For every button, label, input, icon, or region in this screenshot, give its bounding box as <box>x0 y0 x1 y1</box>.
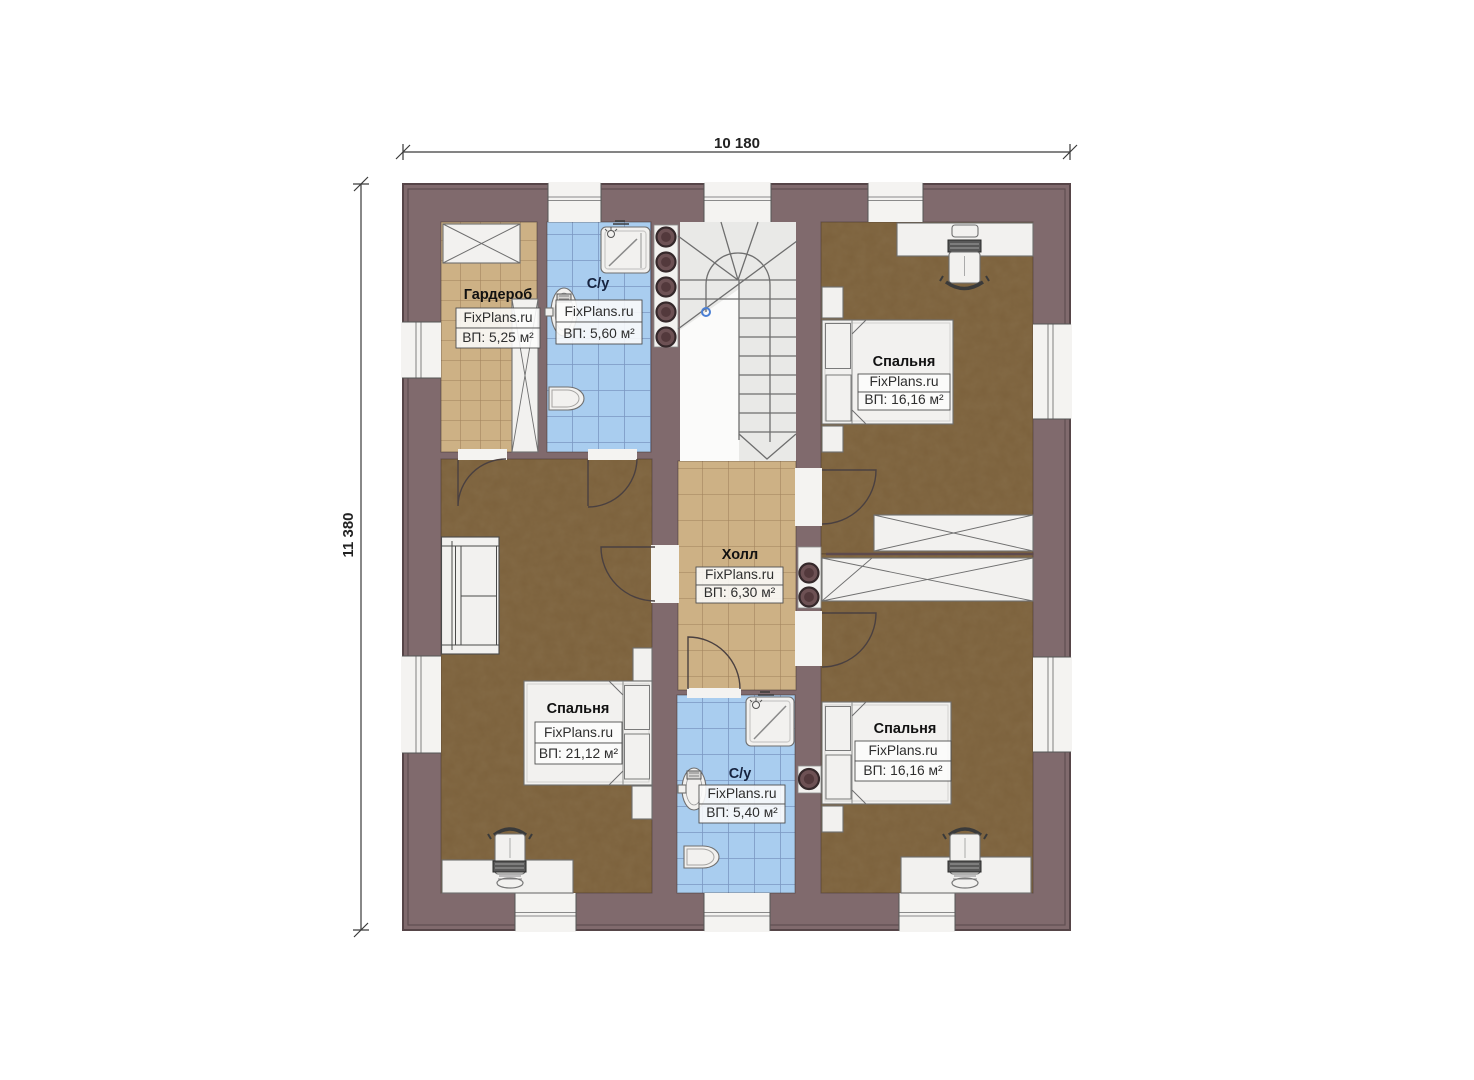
svg-text:FixPlans.ru: FixPlans.ru <box>869 374 938 389</box>
svg-text:FixPlans.ru: FixPlans.ru <box>544 725 613 740</box>
svg-text:FixPlans.ru: FixPlans.ru <box>705 567 774 582</box>
svg-text:FixPlans.ru: FixPlans.ru <box>463 310 532 325</box>
svg-text:ВП: 5,60 м²: ВП: 5,60 м² <box>563 326 635 341</box>
svg-text:С/у: С/у <box>587 276 610 292</box>
svg-text:С/у: С/у <box>729 766 752 782</box>
svg-text:FixPlans.ru: FixPlans.ru <box>707 786 776 801</box>
svg-text:ВП: 5,25 м²: ВП: 5,25 м² <box>462 330 534 345</box>
svg-text:Спальня: Спальня <box>874 721 937 737</box>
svg-text:ВП: 16,16 м²: ВП: 16,16 м² <box>863 763 943 778</box>
svg-text:Гардероб: Гардероб <box>464 287 533 303</box>
svg-text:FixPlans.ru: FixPlans.ru <box>564 304 633 319</box>
svg-text:Спальня: Спальня <box>873 354 936 370</box>
svg-text:ВП: 21,12 м²: ВП: 21,12 м² <box>539 746 619 761</box>
svg-text:ВП: 5,40 м²: ВП: 5,40 м² <box>706 805 778 820</box>
svg-text:ВП: 16,16 м²: ВП: 16,16 м² <box>864 392 944 407</box>
svg-text:10 180: 10 180 <box>714 135 760 152</box>
svg-text:11 380: 11 380 <box>340 512 357 557</box>
svg-text:Холл: Холл <box>722 547 758 563</box>
svg-text:FixPlans.ru: FixPlans.ru <box>868 743 937 758</box>
svg-text:Спальня: Спальня <box>547 701 610 717</box>
svg-text:ВП: 6,30 м²: ВП: 6,30 м² <box>704 585 776 600</box>
